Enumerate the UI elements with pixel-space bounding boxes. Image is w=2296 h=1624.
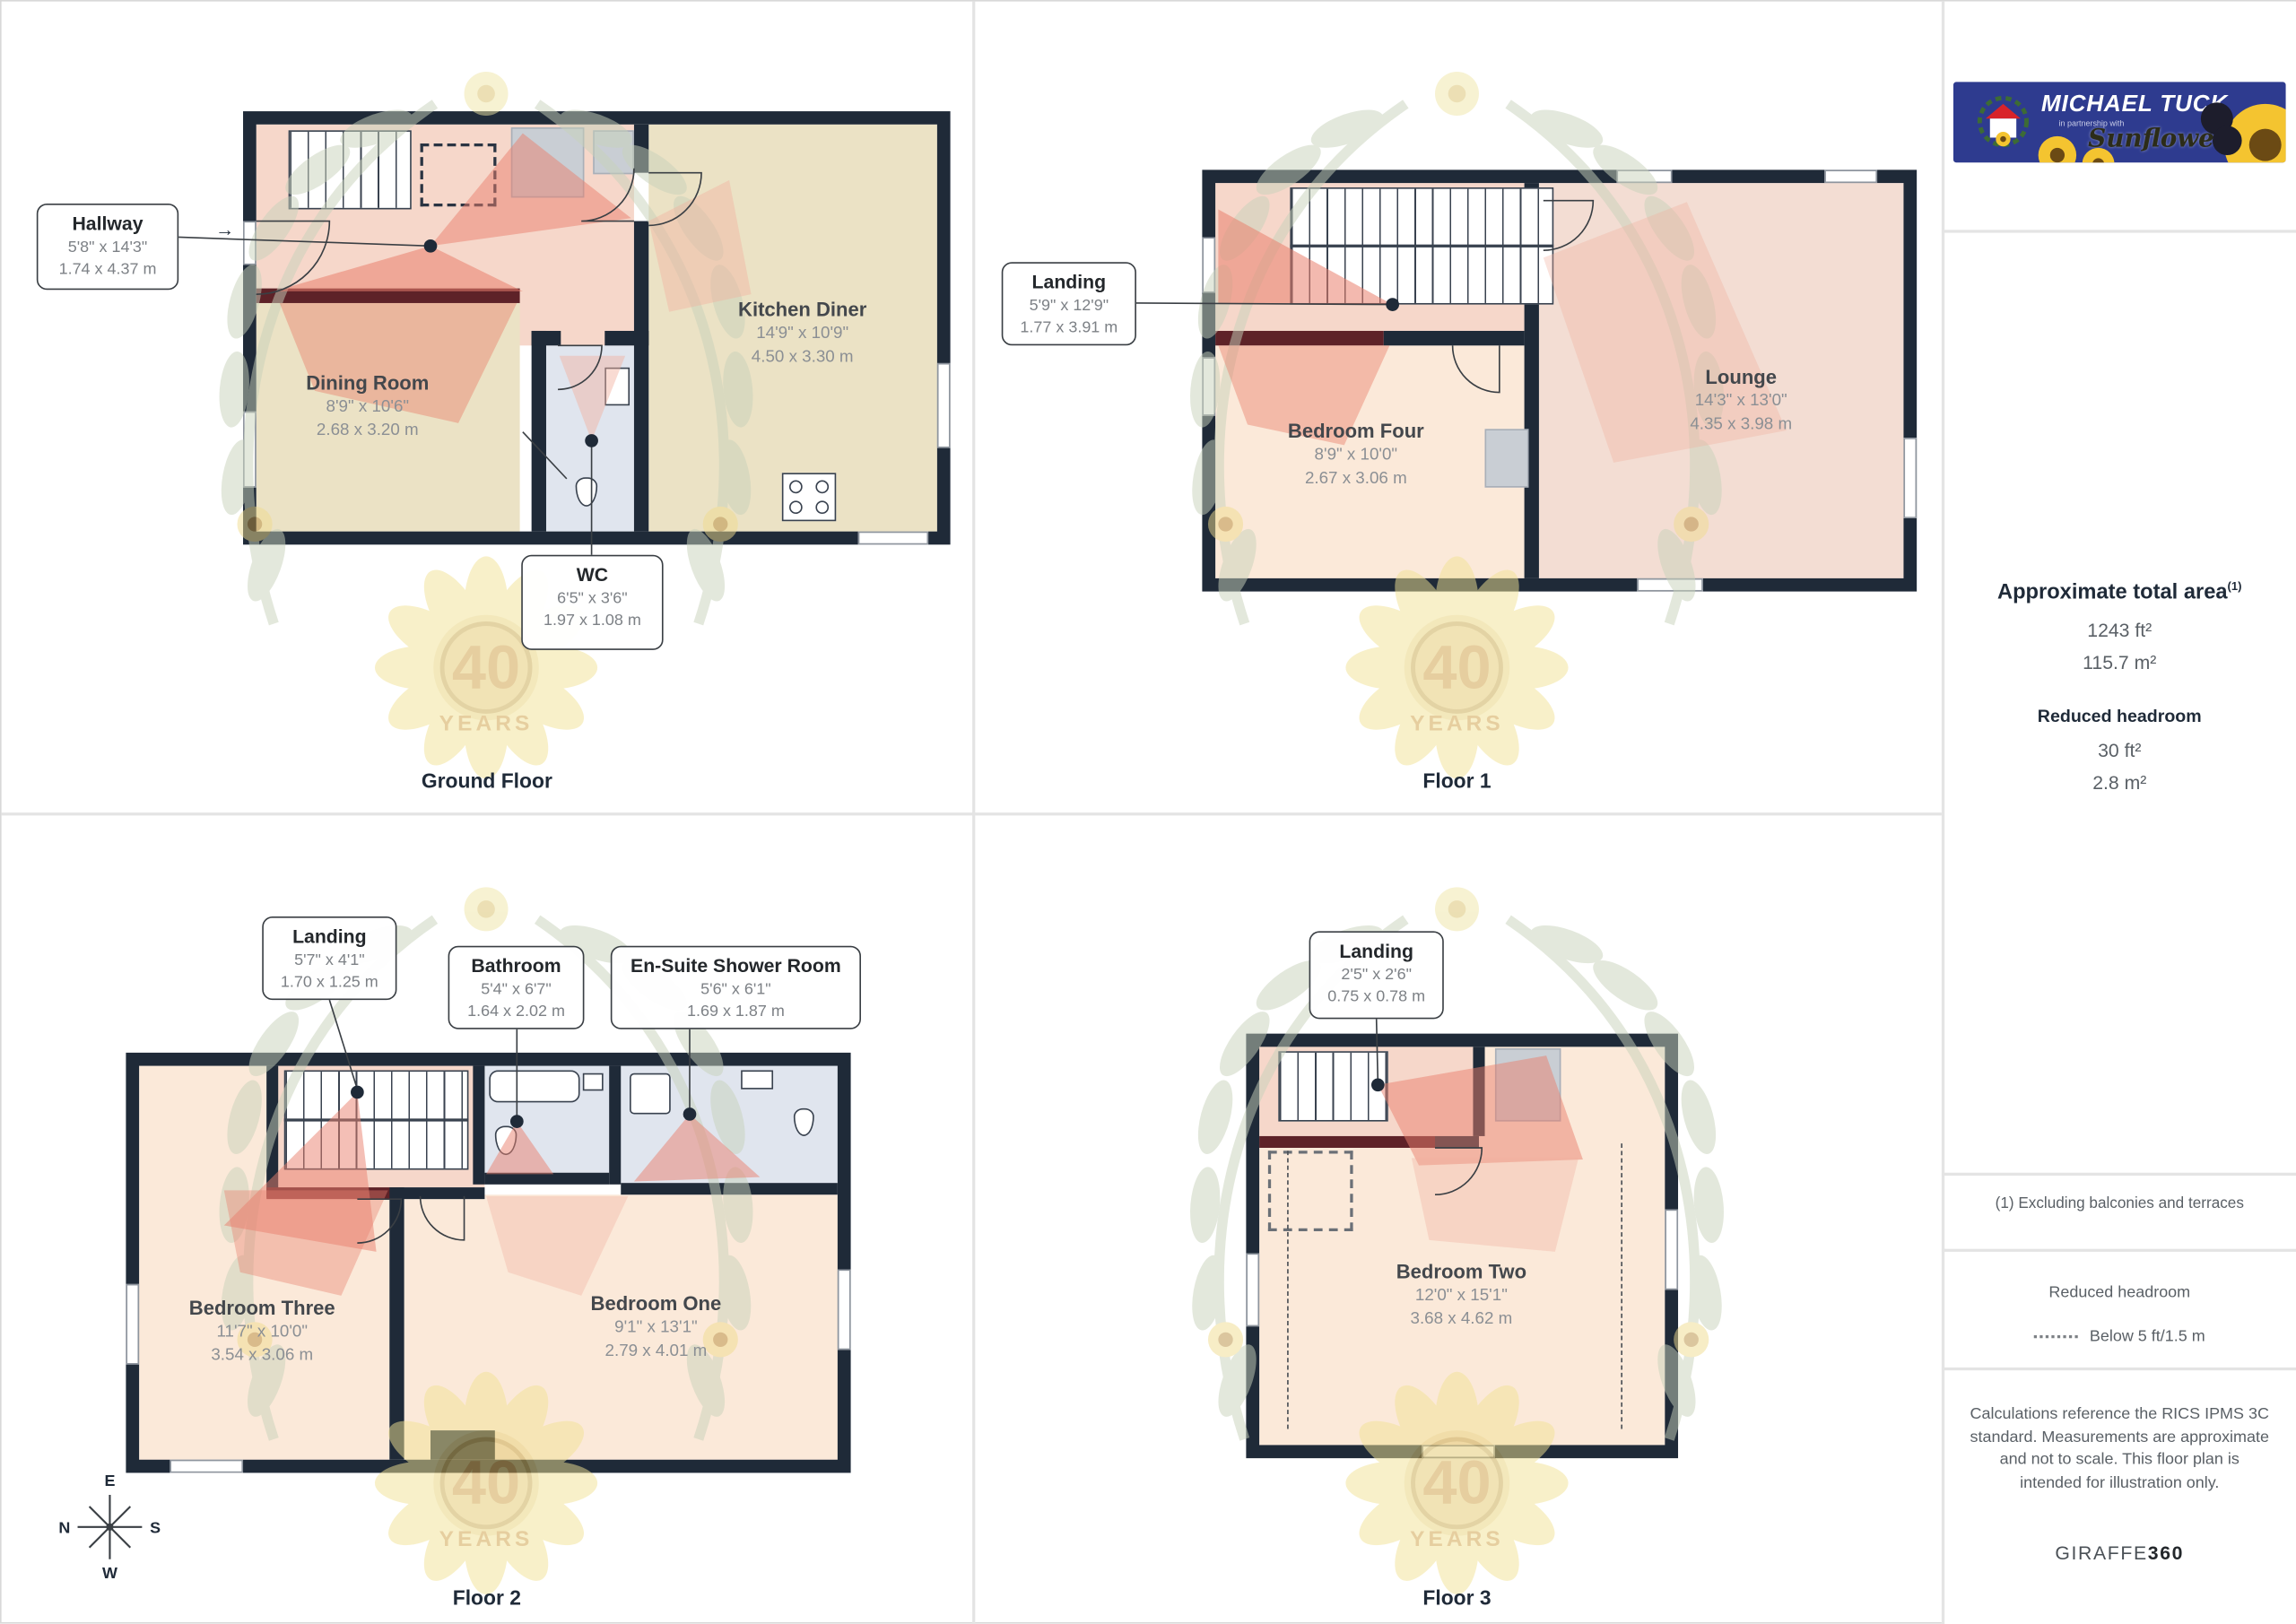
room-label-kitchen: Kitchen Diner 14'9" x 10'9" 4.50 x 3.30 …: [692, 297, 912, 369]
room-label-dining: Dining Room 8'9" x 10'6" 2.68 x 3.20 m: [257, 370, 477, 442]
door-opening: [243, 221, 257, 265]
watermark-years: YEARS: [439, 712, 534, 736]
agency-logo: MICHAEL TUCK in partnership with Sunflow…: [1953, 82, 2286, 162]
window: [1246, 1254, 1259, 1327]
entry-arrow-icon: →: [215, 218, 234, 239]
window: [937, 363, 951, 448]
info-sidebar: MICHAEL TUCK in partnership with Sunflow…: [1942, 2, 2296, 1624]
room-label-bathroom: Bathroom 5'4" x 6'7" 1.64 x 2.02 m: [448, 946, 585, 1029]
badge-icon: [2213, 126, 2242, 155]
svg-text:N: N: [58, 1518, 70, 1536]
total-area-m: 115.7 m²: [1942, 652, 2296, 673]
panel-ground-floor: 40 YEARS: [2, 2, 972, 812]
stairs: [289, 130, 412, 209]
floor-title: Ground Floor: [2, 769, 972, 792]
floor-3-plan: [1246, 1034, 1678, 1458]
bath-icon: [489, 1070, 579, 1102]
cupboard: [593, 130, 634, 174]
stove-icon: [782, 473, 836, 521]
svg-text:W: W: [102, 1564, 117, 1580]
panel-floor-3: 40 YEARS L: [972, 812, 1942, 1624]
panel-floor-1: 40 YEARS: [972, 2, 1942, 812]
watermark-years: YEARS: [1410, 1527, 1504, 1551]
wall-recess: [1616, 169, 1672, 183]
window: [170, 1460, 243, 1473]
wall-recess: [1824, 169, 1877, 183]
reduced-headroom-line: [1287, 1151, 1289, 1429]
cupboard: [511, 127, 585, 197]
window: [1202, 237, 1215, 292]
compass-icon: E N S W: [57, 1469, 163, 1580]
floor-title: Floor 2: [2, 1585, 972, 1609]
sink-icon: [604, 368, 630, 405]
window: [838, 1270, 851, 1350]
closet: [1485, 429, 1529, 487]
room-label-bedroom-four: Bedroom Four 8'9" x 10'0" 2.67 x 3.06 m: [1246, 419, 1465, 491]
reduced-headroom-title: Reduced headroom: [1942, 706, 2296, 726]
house-logo-icon: [1977, 95, 2030, 148]
shower-icon: [630, 1073, 671, 1115]
closet: [1495, 1048, 1561, 1122]
reduced-headroom-m: 2.8 m²: [1942, 771, 2296, 793]
floorplan-sheet: 40 YEARS: [0, 0, 2296, 1624]
total-area-title: Approximate total area(1): [1942, 580, 2296, 604]
window: [1637, 578, 1702, 592]
disclaimer-text: Calculations reference the RICS IPMS 3C …: [1970, 1404, 2270, 1495]
grid-divider-horizontal: [2, 812, 1942, 815]
footnote-text: (1) Excluding balconies and terraces: [1942, 1194, 2296, 1212]
panel-floor-2: 40 YEARS: [2, 812, 972, 1624]
room-label-landing: Landing 5'7" x 4'1" 1.70 x 1.25 m: [262, 916, 396, 1000]
total-area-ft: 1243 ft²: [1942, 620, 2296, 641]
brand-name: MICHAEL TUCK: [2041, 92, 2228, 118]
floor-title: Floor 3: [972, 1585, 1942, 1609]
reduced-headroom-ft: 30 ft²: [1942, 739, 2296, 760]
svg-text:E: E: [104, 1472, 115, 1489]
window: [126, 1284, 139, 1365]
dotted-line-icon: [2034, 1335, 2078, 1338]
room-label-ensuite: En-Suite Shower Room 5'6" x 6'1" 1.69 x …: [611, 946, 861, 1029]
watermark-years: YEARS: [1410, 712, 1504, 736]
watermark-40: 40: [1422, 632, 1491, 701]
room-label-bedroom-two: Bedroom Two 12'0" x 15'1" 3.68 x 4.62 m: [1352, 1259, 1571, 1331]
room-label-landing: Landing 5'9" x 12'9" 1.77 x 3.91 m: [1002, 262, 1136, 345]
watermark-40: 40: [1422, 1448, 1491, 1517]
watermark-years: YEARS: [439, 1527, 534, 1551]
room-label-wc: WC 6'5" x 3'6" 1.97 x 1.08 m: [521, 555, 663, 650]
stairs: [1278, 1051, 1387, 1121]
window: [1665, 1210, 1678, 1290]
sink-icon: [741, 1070, 773, 1089]
window: [243, 412, 257, 488]
legend-title: Reduced headroom: [1942, 1284, 2296, 1302]
grid-divider-vertical: [1942, 2, 1944, 1624]
legend-row: Below 5 ft/1.5 m: [1942, 1319, 2296, 1345]
legend-label: Below 5 ft/1.5 m: [2090, 1328, 2205, 1346]
sunflower-icon: [2039, 136, 2076, 162]
room-label-hallway: Hallway 5'8" x 14'3" 1.74 x 4.37 m: [37, 204, 178, 290]
room-label-lounge: Lounge 14'3" x 13'0" 4.35 x 3.98 m: [1631, 365, 1851, 437]
room-label-bedroom-one: Bedroom One 9'1" x 13'1" 2.79 x 4.01 m: [546, 1291, 766, 1363]
floorplan-canvas: 40 YEARS: [0, 0, 2296, 1624]
window: [1422, 1445, 1495, 1458]
sink-icon: [583, 1073, 604, 1091]
giraffe360-logo: GIRAFFE360: [1942, 1541, 2296, 1563]
reduced-headroom-storage: [1268, 1151, 1353, 1231]
floor-title: Floor 1: [972, 769, 1942, 792]
window: [1202, 357, 1215, 415]
room-label-landing: Landing 2'5" x 2'6" 0.75 x 0.78 m: [1309, 931, 1444, 1019]
svg-text:S: S: [150, 1518, 161, 1536]
reduced-headroom-line: [1621, 1143, 1622, 1429]
floor-2-plan: [126, 1053, 850, 1473]
understairs-storage: [421, 143, 497, 206]
window: [1903, 438, 1917, 518]
window: [858, 532, 928, 545]
watermark-40: 40: [452, 632, 520, 701]
footnote-marker: (1): [2228, 580, 2242, 594]
room-label-bedroom-three: Bedroom Three 11'7" x 10'0" 3.54 x 3.06 …: [152, 1296, 372, 1368]
